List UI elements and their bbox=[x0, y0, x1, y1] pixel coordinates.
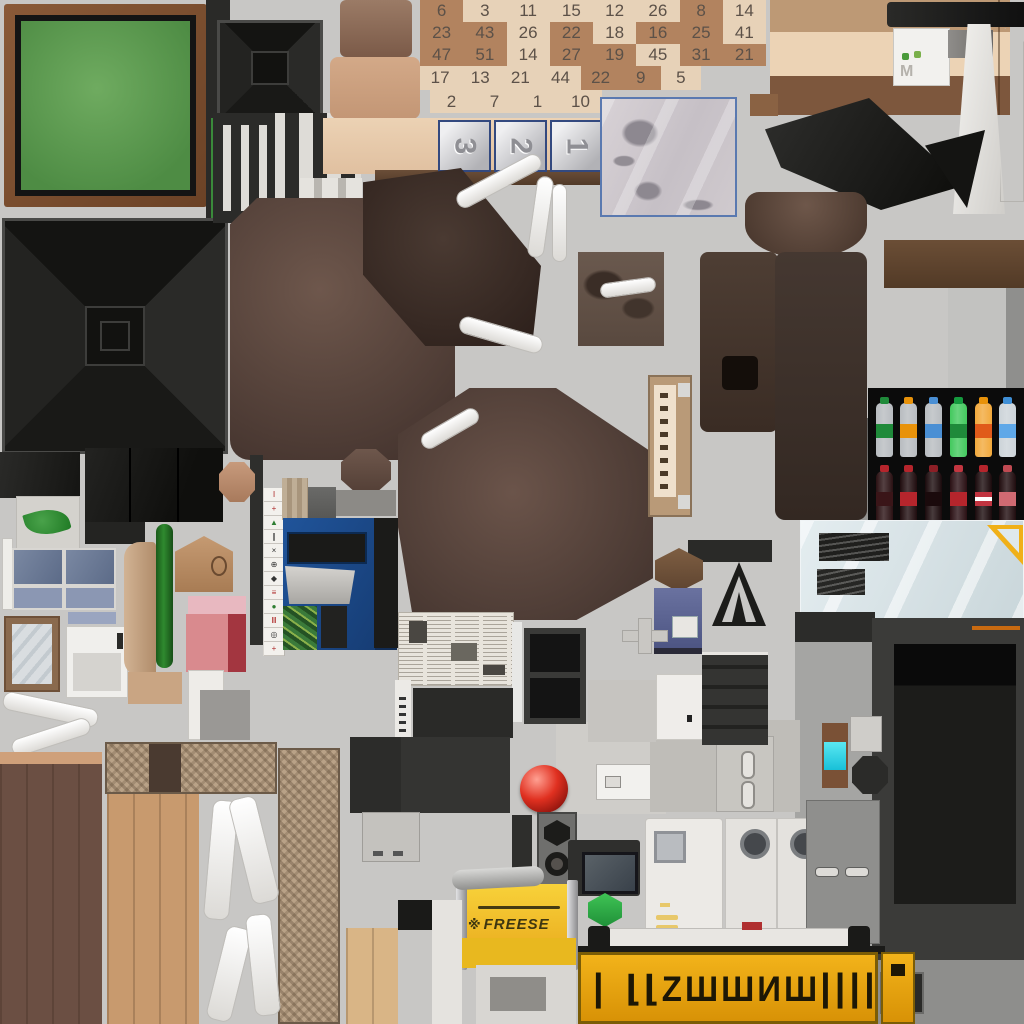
bingo-cell: 25 bbox=[680, 22, 723, 44]
wood-mirror bbox=[4, 616, 60, 692]
dark-wood-floor bbox=[0, 764, 102, 1024]
hanging-scroll-tag bbox=[648, 375, 692, 517]
bingo-cell: 23 bbox=[420, 22, 463, 44]
window-pane bbox=[14, 550, 62, 584]
bottle-label bbox=[950, 424, 967, 438]
bingo-cell: 51 bbox=[463, 44, 506, 66]
frame-green-canvas bbox=[21, 21, 190, 190]
drink-bottle bbox=[975, 397, 992, 457]
cardboard-tab bbox=[750, 94, 778, 116]
leaf-card bbox=[16, 496, 80, 550]
drawer-handle bbox=[373, 851, 383, 856]
easel-frame-triangle bbox=[712, 562, 766, 626]
pyramid-core-inner bbox=[100, 321, 130, 351]
white-key-slot bbox=[241, 125, 249, 211]
sign-tally-glyphs: |||| bbox=[820, 967, 879, 1010]
drink-bottle bbox=[876, 397, 893, 457]
red-sphere-button bbox=[520, 765, 568, 813]
drink-bottle bbox=[900, 397, 917, 457]
bingo-row: 171321442295 bbox=[420, 66, 701, 90]
bingo-cell: 18 bbox=[593, 22, 636, 44]
microwave-window bbox=[582, 852, 638, 894]
plant-dot-icon bbox=[914, 51, 921, 58]
key-notch bbox=[314, 178, 322, 198]
plus-table-top bbox=[638, 618, 652, 654]
leather-dome bbox=[745, 192, 867, 258]
bingo-cell: 13 bbox=[460, 66, 500, 90]
mahjong-tile: × bbox=[264, 544, 284, 558]
bottle-label bbox=[950, 492, 967, 506]
white-door-chip bbox=[656, 674, 704, 740]
pink-box-lid bbox=[188, 596, 246, 614]
cola-bottle bbox=[876, 465, 893, 525]
bingo-cell: 14 bbox=[507, 44, 550, 66]
headline-block bbox=[483, 665, 505, 675]
bingo-cell: 6 bbox=[420, 0, 463, 22]
amp-stack bbox=[702, 652, 768, 745]
base-slot bbox=[490, 977, 546, 1011]
plant-dot-icon bbox=[902, 53, 909, 60]
bottle-cap bbox=[954, 465, 963, 472]
bingo-cell: 16 bbox=[636, 22, 679, 44]
tray-shadow bbox=[73, 653, 121, 691]
bingo-cell: 22 bbox=[550, 22, 593, 44]
gray-drawer bbox=[362, 812, 420, 862]
wicker-band-horizontal bbox=[105, 742, 277, 794]
sketch-m-lines: M bbox=[900, 63, 942, 81]
tan-box bbox=[128, 672, 182, 704]
bingo-cell: 26 bbox=[507, 22, 550, 44]
key-notch bbox=[338, 178, 346, 198]
leaf-icon bbox=[22, 503, 71, 540]
white-key-slot bbox=[223, 125, 231, 211]
window-pane-grid bbox=[12, 548, 116, 610]
bingo-cell: 12 bbox=[593, 0, 636, 22]
bottle-cap bbox=[880, 397, 889, 404]
cooler-row-top bbox=[868, 393, 1024, 457]
bingo-cell: 22 bbox=[581, 66, 621, 90]
bottle-label bbox=[876, 492, 893, 506]
bingo-cell: 31 bbox=[680, 44, 723, 66]
scroll-cap bbox=[678, 495, 690, 509]
bingo-cell: 45 bbox=[636, 44, 679, 66]
ink-squiggle bbox=[399, 692, 406, 732]
bingo-row: 2343262218162541 bbox=[420, 22, 766, 44]
pill-handle bbox=[815, 867, 839, 877]
countdown-digit: 1 bbox=[560, 138, 594, 155]
charcoal-sketch bbox=[819, 533, 889, 561]
wardrobe-recess bbox=[894, 644, 1016, 904]
bingo-row: 27110 bbox=[430, 90, 602, 113]
bottle-cap bbox=[929, 397, 938, 404]
light-wood-floor bbox=[107, 790, 199, 1024]
countdown-tile: 3 bbox=[438, 120, 491, 172]
gray-box-top bbox=[336, 490, 396, 516]
dark-box-upper bbox=[413, 688, 513, 738]
pill-handle bbox=[741, 751, 755, 779]
cooler-row-bottom bbox=[868, 461, 1024, 525]
wood-edge-tan bbox=[0, 752, 102, 764]
socket-icon bbox=[605, 776, 621, 788]
bottle-label bbox=[999, 492, 1016, 506]
leather-chunk-c bbox=[398, 388, 653, 620]
white-pipe bbox=[552, 184, 567, 262]
bottle-cap bbox=[929, 465, 938, 472]
drink-bottle bbox=[925, 397, 942, 457]
bingo-cell: 21 bbox=[723, 44, 766, 66]
white-pipe bbox=[227, 794, 280, 906]
mahjong-tile: ∥ bbox=[264, 530, 284, 544]
bingo-cell: 47 bbox=[420, 44, 463, 66]
bottle-label bbox=[999, 424, 1016, 438]
bottle-label bbox=[900, 492, 917, 506]
microwave bbox=[568, 840, 640, 896]
chip-glyph bbox=[891, 964, 905, 976]
bingo-cell: 41 bbox=[723, 22, 766, 44]
curved-wood-strip bbox=[124, 542, 156, 676]
bingo-cell: 7 bbox=[473, 90, 516, 113]
bingo-cell: 43 bbox=[463, 22, 506, 44]
bingo-cell: 8 bbox=[680, 0, 723, 22]
gold-sign-chip bbox=[881, 952, 915, 1024]
indigo-cabinet bbox=[654, 588, 702, 654]
black-gloss-block bbox=[0, 452, 80, 498]
mahjong-tile: + bbox=[264, 502, 284, 516]
bottle-cap bbox=[904, 465, 913, 472]
speaker-pyramid-small bbox=[217, 20, 323, 116]
grommet-ring bbox=[211, 556, 227, 576]
mahjong-tile: ● bbox=[264, 600, 284, 614]
bottle-stripe bbox=[975, 497, 992, 501]
black-lip bbox=[85, 522, 145, 544]
orange-accent-line bbox=[972, 626, 1020, 630]
bingo-cell: 17 bbox=[420, 66, 460, 90]
pill-handle bbox=[845, 867, 869, 877]
gray-panel-plain bbox=[588, 680, 656, 742]
white-pipe bbox=[526, 175, 554, 259]
speaker-ring-driver bbox=[545, 852, 569, 876]
cheese-stand-lower bbox=[458, 938, 576, 968]
mahjong-tile: + bbox=[264, 642, 284, 656]
window-dark-pane bbox=[530, 634, 580, 672]
window-dark-pane bbox=[530, 678, 580, 718]
white-note-card: M bbox=[893, 28, 950, 86]
yellow-dash bbox=[660, 903, 670, 907]
green-hexagon bbox=[588, 893, 622, 927]
cheese-signage: ※ FREESE bbox=[468, 916, 550, 933]
bingo-cell: 21 bbox=[500, 66, 540, 90]
drink-bottle bbox=[999, 397, 1016, 457]
dark-shelf-bar bbox=[688, 540, 772, 562]
bottle-cap bbox=[1003, 465, 1012, 472]
dark-octagon bbox=[852, 756, 888, 794]
gray-wedge bbox=[200, 690, 250, 740]
bingo-cell: 9 bbox=[621, 66, 661, 90]
wicker-dark-section bbox=[149, 744, 181, 792]
panel-seam bbox=[177, 448, 179, 522]
white-pipe bbox=[245, 913, 282, 1017]
slab-cutout bbox=[722, 356, 758, 390]
bingo-cell: 44 bbox=[540, 66, 580, 90]
bottle-cap bbox=[904, 397, 913, 404]
bottle-cap bbox=[979, 465, 988, 472]
cheese-stand-label: FREESE bbox=[484, 916, 550, 933]
yellow-dash bbox=[656, 915, 678, 920]
awning-rod bbox=[478, 906, 560, 909]
leather-slab-tall bbox=[775, 252, 867, 520]
bingo-cell: 19 bbox=[593, 44, 636, 66]
window-pane bbox=[66, 588, 114, 608]
green-cylinder bbox=[156, 524, 173, 668]
bottle-label bbox=[975, 424, 992, 438]
mahjong-tile: Ⅲ bbox=[264, 614, 284, 628]
mahjong-tile: ◆ bbox=[264, 572, 284, 586]
desk-sketch bbox=[850, 716, 882, 752]
bottle-cap bbox=[979, 397, 988, 404]
bingo-cell: 27 bbox=[550, 44, 593, 66]
green-frame-board bbox=[4, 4, 207, 207]
bottle-label bbox=[876, 424, 893, 438]
window-pane-small bbox=[68, 612, 116, 624]
outlet-plate bbox=[596, 764, 652, 800]
alien-sign-board: | ⌊⌊ΖШШИШ |||| bbox=[578, 952, 878, 1024]
sign-bar-glyph: | bbox=[593, 967, 604, 1010]
white-column bbox=[432, 900, 462, 1024]
mahjong-tile: ▲ bbox=[264, 516, 284, 530]
black-window-frame bbox=[524, 628, 586, 724]
countdown-digit: 3 bbox=[448, 138, 482, 155]
panel-sheen bbox=[602, 99, 735, 215]
cheese-stand-base bbox=[476, 965, 576, 1024]
cola-bottle bbox=[975, 465, 992, 525]
bingo-cell: 1 bbox=[516, 90, 559, 113]
wardrobe-shell bbox=[872, 618, 1024, 960]
drawer-handle bbox=[393, 851, 403, 856]
tan-cushion-box bbox=[330, 57, 420, 119]
wicker-strip-vertical bbox=[278, 748, 340, 1024]
light-wood-tile bbox=[346, 928, 398, 1024]
mahjong-tile-column: Ⅰ+▲∥×⊕◆≡●Ⅲ◎+ bbox=[263, 488, 284, 656]
brown-cushion-top bbox=[340, 0, 412, 57]
cabinet-door bbox=[716, 736, 774, 812]
headline-block bbox=[409, 621, 427, 643]
window-pane bbox=[66, 550, 114, 584]
black-gloss-panel bbox=[85, 448, 223, 522]
calligraphy-marks bbox=[660, 393, 668, 489]
bingo-cell: 15 bbox=[550, 0, 593, 22]
bottle-label bbox=[925, 424, 942, 438]
red-clip bbox=[742, 922, 762, 930]
dark-box-lower bbox=[350, 737, 510, 813]
mahjong-tile: ⊕ bbox=[264, 558, 284, 572]
leather-slab-hole bbox=[700, 252, 778, 432]
bingo-cell: 26 bbox=[636, 0, 679, 22]
cabinet-label bbox=[672, 616, 698, 638]
dark-band bbox=[795, 612, 875, 642]
newspaper-texture bbox=[398, 612, 514, 686]
pink-red-box bbox=[186, 614, 246, 672]
mahjong-tile: ◎ bbox=[264, 628, 284, 642]
blur-notice-panel bbox=[600, 97, 737, 217]
mirror-glass bbox=[12, 624, 52, 684]
black-column bbox=[374, 518, 398, 648]
ink-mark bbox=[117, 633, 123, 649]
bingo-row: 6311151226814 bbox=[420, 0, 766, 22]
speaker-hex-driver bbox=[544, 820, 570, 846]
tent-panel bbox=[175, 536, 233, 592]
cabinet-base bbox=[654, 648, 702, 654]
panel-seam bbox=[129, 448, 131, 522]
porthole-window bbox=[740, 829, 770, 859]
door-dot bbox=[687, 715, 692, 722]
texture-atlas-sheet: 6311151226814234326221816254147511427194… bbox=[0, 0, 1024, 1024]
bottle-cap bbox=[954, 397, 963, 404]
dark-shadow-bar bbox=[887, 2, 1024, 27]
bottle-label bbox=[900, 424, 917, 438]
fridge-window bbox=[654, 831, 686, 863]
charcoal-sketch bbox=[817, 569, 865, 595]
white-pipe bbox=[205, 924, 253, 1023]
mahjong-tile: Ⅰ bbox=[264, 488, 284, 502]
bottle-cap bbox=[1003, 397, 1012, 404]
bingo-cell: 14 bbox=[723, 0, 766, 22]
gray-column bbox=[948, 288, 1006, 388]
brown-plank bbox=[884, 240, 1024, 288]
white-tray bbox=[66, 626, 128, 698]
cola-bottle bbox=[900, 465, 917, 525]
drink-cooler bbox=[868, 388, 1024, 530]
window-pane bbox=[14, 588, 62, 608]
countdown-tile: 1 bbox=[550, 120, 603, 172]
cola-bottle bbox=[999, 465, 1016, 525]
cabinet-screen bbox=[321, 606, 347, 648]
brown-octagon-knob bbox=[341, 449, 391, 493]
cola-bottle bbox=[950, 465, 967, 525]
bottle-cap bbox=[880, 465, 889, 472]
gray-door-handles bbox=[806, 800, 880, 944]
bingo-cell: 11 bbox=[507, 0, 550, 22]
black-chip bbox=[398, 900, 432, 930]
cyan-chip bbox=[824, 742, 846, 770]
leather-panel-square bbox=[578, 252, 664, 346]
white-side-strip bbox=[512, 622, 522, 722]
bingo-cell: 5 bbox=[661, 66, 701, 90]
paw-icon: ※ bbox=[468, 917, 481, 933]
bingo-cell: 3 bbox=[463, 0, 506, 22]
jungle-art-card bbox=[283, 606, 317, 650]
photo-block bbox=[451, 643, 477, 661]
cabinet-tray bbox=[285, 566, 355, 604]
pyramid-core bbox=[251, 51, 289, 85]
pill-handle bbox=[741, 781, 755, 809]
scroll-cap bbox=[678, 383, 690, 397]
drink-bottle bbox=[950, 397, 967, 457]
bingo-cell: 2 bbox=[430, 90, 473, 113]
cabinet-screen bbox=[287, 532, 367, 564]
sign-alien-text: ⌊⌊ΖШШИШ bbox=[626, 967, 821, 1009]
mahjong-tile: ≡ bbox=[264, 586, 284, 600]
wood-trim-piece bbox=[282, 478, 308, 520]
bottle-label bbox=[925, 492, 942, 506]
countdown-digit: 2 bbox=[504, 138, 538, 155]
cola-bottle bbox=[925, 465, 942, 525]
speaker-pyramid-large bbox=[2, 218, 228, 454]
bingo-cell: 10 bbox=[559, 90, 602, 113]
bingo-row: 4751142719453121 bbox=[420, 44, 766, 66]
